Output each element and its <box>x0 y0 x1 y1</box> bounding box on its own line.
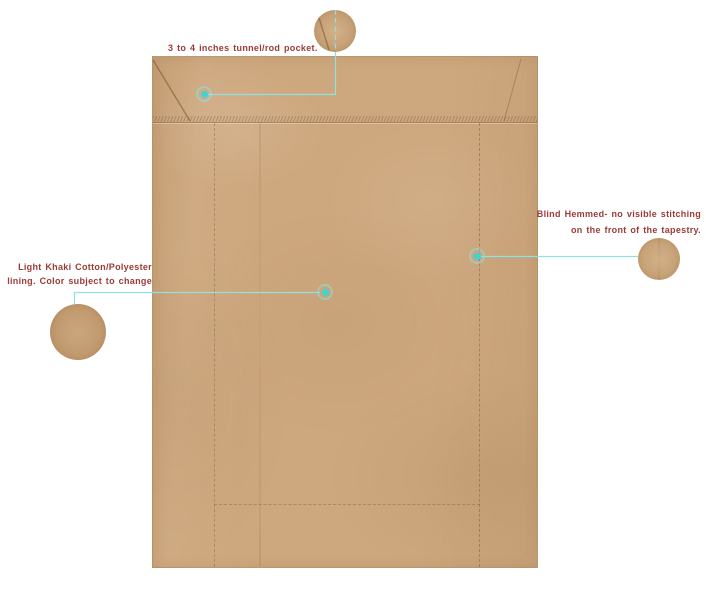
lining-fabric-swatch-circle <box>50 304 106 360</box>
blind-hem-callout-dot <box>469 248 485 264</box>
blind-hem-label-line2: on the front of the tapestry. <box>537 222 701 238</box>
tapestry-fabric <box>152 56 538 568</box>
rod-pocket-magnifier-circle <box>314 10 356 52</box>
rod-pocket-label: 3 to 4 inches tunnel/rod pocket. <box>168 43 318 53</box>
lining-label: Light Khaki Cotton/Polyester lining. Col… <box>2 261 152 288</box>
bottom-hem-seam <box>214 504 480 505</box>
blind-hem-detail-circle <box>638 238 680 280</box>
left-hem-seam <box>214 123 215 567</box>
fabric-crease <box>259 123 261 567</box>
blind-hem-label-line1: Blind Hemmed- no visible stitching <box>537 206 701 222</box>
annotated-product-image: 3 to 4 inches tunnel/rod pocket. Light K… <box>0 0 706 600</box>
lining-label-line1: Light Khaki Cotton/Polyester <box>2 261 152 275</box>
lining-label-line2: lining. Color subject to change <box>2 275 152 289</box>
blind-hem-label: Blind Hemmed- no visible stitching on th… <box>537 206 701 238</box>
right-hem-seam <box>479 123 480 567</box>
lining-callout-dot <box>317 284 333 300</box>
rod-pocket-callout-dot <box>196 86 212 102</box>
